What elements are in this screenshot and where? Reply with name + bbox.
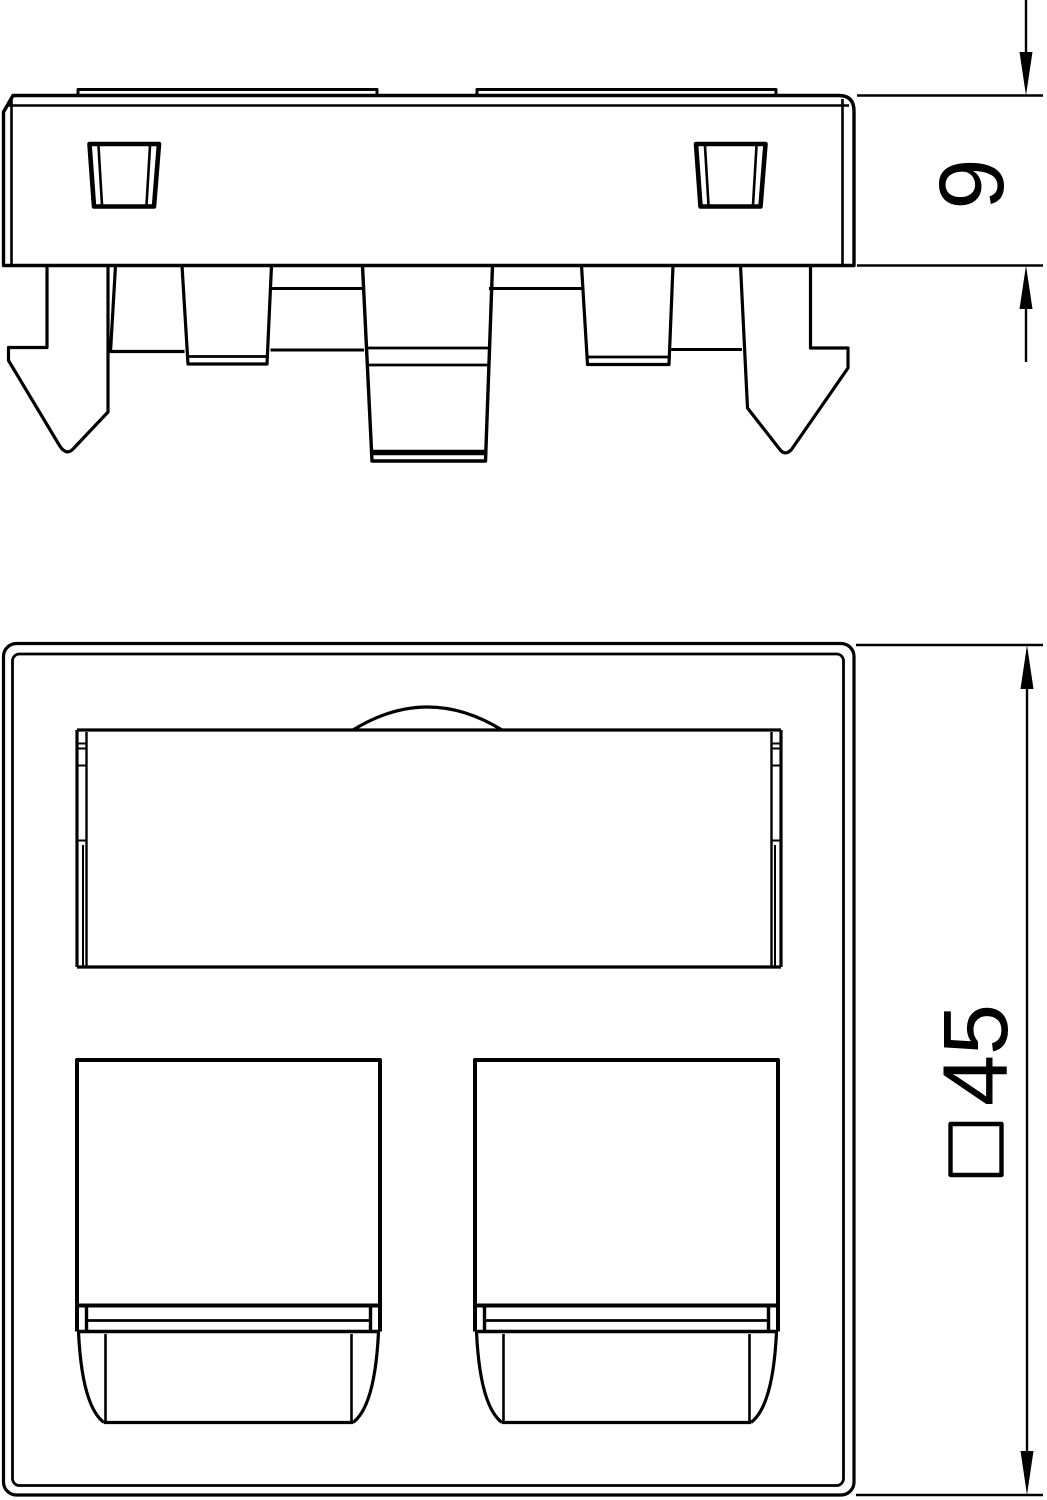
square-symbol [951,1124,1002,1175]
side-tongue-b [582,266,674,365]
jack-opening-right [475,1060,778,1423]
side-barb-latch-right [741,266,849,453]
label-field [77,707,781,967]
jack-opening-left [77,1060,380,1423]
dimension-height-9: 9 [857,0,1043,362]
dust-flap-left [79,1332,379,1423]
side-tongue-a [182,266,272,365]
dimension-square-45: 45 [856,645,1043,1495]
front-face-view [4,644,855,1496]
side-clip-right [696,144,766,207]
side-leg-left [111,266,185,352]
drawing-canvas: 9 [0,0,1047,1500]
front-outer-frame [4,644,855,1496]
side-clip-left [90,144,160,207]
side-barb-latch-left [9,266,109,452]
side-center-tongue [363,266,493,462]
arrowhead-down [1021,1451,1034,1495]
side-profile-view [4,90,855,462]
side-body-outline [4,96,855,266]
dimension-45-label: 45 [925,1004,1027,1106]
arrowhead-up [1020,266,1033,310]
dimension-9-label: 9 [921,158,1023,209]
arrowhead-down [1020,52,1033,96]
dust-flap-right [477,1332,777,1423]
front-inner-frame [13,654,844,1486]
finger-recess-arc [353,707,502,730]
arrowhead-up [1021,645,1034,689]
technical-drawing-page: 9 [0,0,1047,1500]
